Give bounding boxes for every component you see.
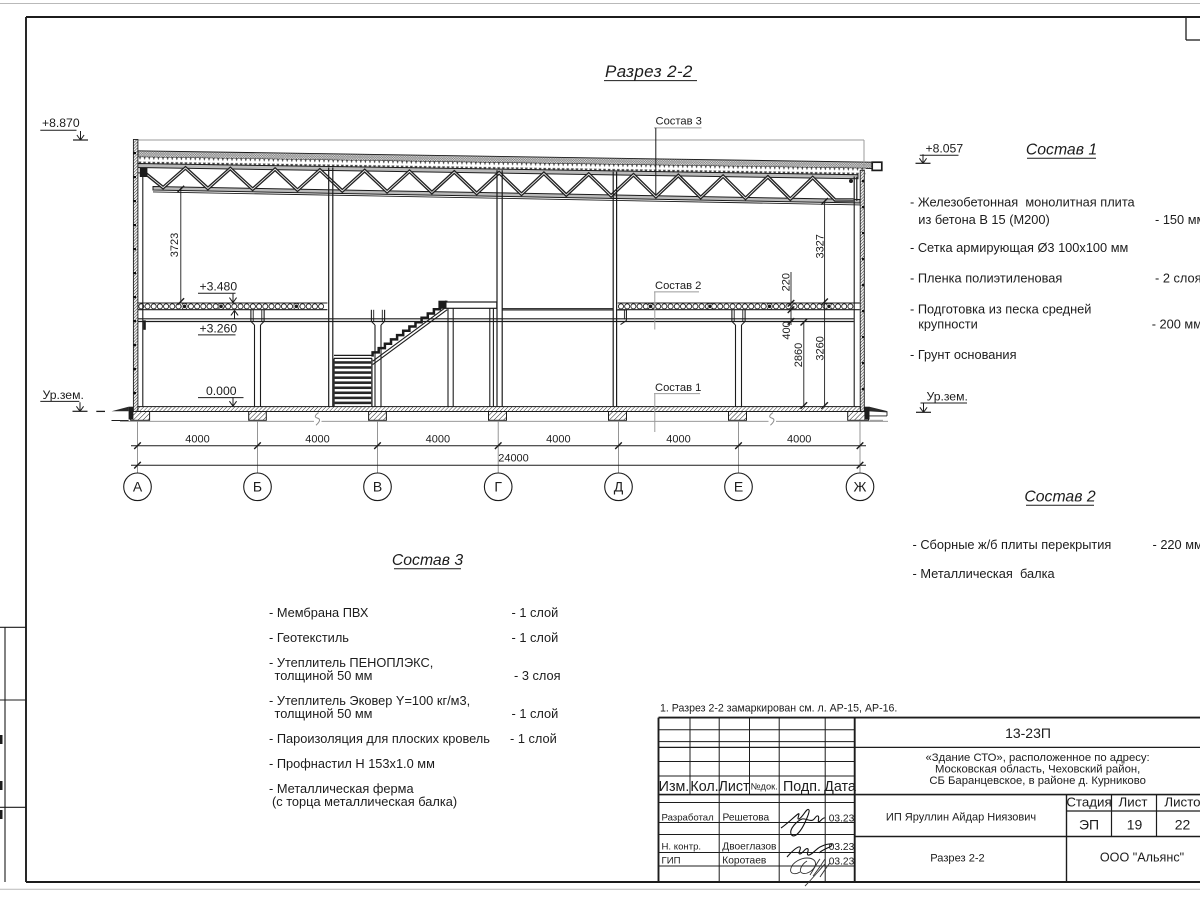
svg-text:1. Разрез 2-2 замаркирован см.: 1. Разрез 2-2 замаркирован см. л. АР-15,… xyxy=(660,703,897,715)
svg-text:Разрез 2-2: Разрез 2-2 xyxy=(605,62,693,81)
svg-text:13-23П: 13-23П xyxy=(1005,725,1051,741)
svg-text:Состав 1: Состав 1 xyxy=(655,382,701,394)
svg-text:- Железобетонная монолитная п: - Железобетонная монолитная плита xyxy=(910,195,1136,210)
svg-text:из бетона В 15 (М200): из бетона В 15 (М200) xyxy=(918,212,1049,227)
svg-text:4000: 4000 xyxy=(426,434,450,446)
svg-text:ГИП: ГИП xyxy=(662,856,681,867)
svg-text:Н. контр.: Н. контр. xyxy=(662,841,702,852)
svg-text:+8.057: +8.057 xyxy=(926,142,964,156)
svg-text:толщиной 50 мм: толщиной 50 мм xyxy=(275,668,373,683)
svg-text:- 150 мм: - 150 мм xyxy=(1155,212,1200,227)
svg-text:- 1 слой: - 1 слой xyxy=(512,630,559,645)
svg-text:ИП Яруллин Айдар Ниязович: ИП Яруллин Айдар Ниязович xyxy=(886,812,1036,824)
svg-text:толщиной 50 мм: толщиной 50 мм xyxy=(275,706,373,721)
svg-text:Листов: Листов xyxy=(1164,795,1200,810)
svg-text:Г: Г xyxy=(494,479,502,495)
svg-text:- 3 слоя: - 3 слоя xyxy=(514,668,561,683)
svg-text:Состав 1: Состав 1 xyxy=(1026,142,1097,159)
svg-text:400: 400 xyxy=(781,321,793,339)
svg-text:Ж: Ж xyxy=(854,479,867,495)
svg-text:крупности: крупности xyxy=(918,316,978,331)
svg-text:Коротаев: Коротаев xyxy=(722,856,766,867)
svg-text:- 200 мм: - 200 мм xyxy=(1152,316,1200,331)
svg-text:- Металлическая балка: - Металлическая балка xyxy=(913,566,1056,581)
svg-text:+3.260: +3.260 xyxy=(200,322,238,336)
svg-text:Е: Е xyxy=(734,479,743,495)
svg-text:- Грунт основания: - Грунт основания xyxy=(910,347,1017,362)
svg-text:Разработал: Разработал xyxy=(662,813,714,824)
svg-text:- Пароизоляция для плоских кро: - Пароизоляция для плоских кровель xyxy=(269,731,490,746)
svg-text:+8.870: +8.870 xyxy=(42,116,80,130)
svg-text:Лист: Лист xyxy=(718,779,750,795)
svg-text:3327: 3327 xyxy=(814,234,826,258)
svg-text:ЭП: ЭП xyxy=(1079,817,1099,833)
svg-text:03.23: 03.23 xyxy=(829,842,855,853)
svg-text:Состав 2: Состав 2 xyxy=(1024,489,1095,506)
svg-text:4000: 4000 xyxy=(666,434,690,446)
svg-text:4000: 4000 xyxy=(305,434,329,446)
svg-text:03.23: 03.23 xyxy=(829,856,855,867)
svg-text:Дата: Дата xyxy=(824,779,856,795)
svg-text:Кол.: Кол. xyxy=(690,779,718,795)
svg-text:+3.480: +3.480 xyxy=(200,280,238,294)
svg-text:А: А xyxy=(133,479,143,495)
svg-text:- Профнастил Н 153х1.0 мм: - Профнастил Н 153х1.0 мм xyxy=(269,756,435,771)
svg-text:- 220 мм: - 220 мм xyxy=(1153,537,1200,552)
svg-text:- Сетка армирующая Ø3 100х100: - Сетка армирующая Ø3 100х100 мм xyxy=(910,240,1128,255)
svg-text:Ур.зем.: Ур.зем. xyxy=(927,390,968,404)
svg-text:В: В xyxy=(373,479,382,495)
svg-text:- Геотекстиль: - Геотекстиль xyxy=(269,630,349,645)
svg-text:№док.: №док. xyxy=(751,782,778,792)
svg-text:4000: 4000 xyxy=(185,434,209,446)
svg-text:- 1 слой: - 1 слой xyxy=(512,605,559,620)
svg-text:- Сборные ж/б плиты перекрытия: - Сборные ж/б плиты перекрытия xyxy=(913,537,1112,552)
svg-text:Стадия: Стадия xyxy=(1066,795,1111,810)
svg-text:ООО "Альянс": ООО "Альянс" xyxy=(1100,851,1184,865)
svg-text:03.23: 03.23 xyxy=(829,813,855,824)
svg-text:- 1 слой: - 1 слой xyxy=(512,706,559,721)
svg-text:Разрез 2-2: Разрез 2-2 xyxy=(930,853,984,865)
svg-text:Состав 3: Состав 3 xyxy=(392,552,463,569)
svg-text:- Пленка полиэтиленовая: - Пленка полиэтиленовая xyxy=(910,270,1062,285)
svg-text:3723: 3723 xyxy=(169,233,181,257)
svg-text:Б: Б xyxy=(253,479,262,495)
svg-text:(с торца металлическая балка): (с торца металлическая балка) xyxy=(272,794,457,809)
svg-text:2860: 2860 xyxy=(793,343,805,367)
svg-text:Состав 2: Состав 2 xyxy=(655,280,701,292)
svg-text:19: 19 xyxy=(1127,817,1143,833)
svg-text:Ур.зем.: Ур.зем. xyxy=(43,388,84,402)
svg-text:- 1 слой: - 1 слой xyxy=(510,731,557,746)
svg-text:Изм.: Изм. xyxy=(659,779,690,795)
svg-text:СБ Баранцевское, в районе д. К: СБ Баранцевское, в районе д. Курниково xyxy=(929,775,1146,787)
svg-text:Состав 3: Состав 3 xyxy=(656,116,702,128)
svg-text:3260: 3260 xyxy=(815,336,827,360)
svg-text:Подп.: Подп. xyxy=(783,779,821,795)
svg-text:Лист: Лист xyxy=(1119,795,1148,810)
svg-text:22: 22 xyxy=(1175,817,1191,833)
svg-text:- Подготовка из песка средней: - Подготовка из песка средней xyxy=(910,301,1091,316)
svg-text:«Здание СТО», расположенное по: «Здание СТО», расположенное по адресу: xyxy=(926,752,1150,764)
svg-text:Московская область, Чеховский: Московская область, Чеховский район, xyxy=(935,764,1140,776)
svg-text:- 2 слоя: - 2 слоя xyxy=(1155,270,1200,285)
svg-text:24000: 24000 xyxy=(498,453,529,465)
svg-text:220: 220 xyxy=(780,273,792,291)
svg-text:Решетова: Решетова xyxy=(723,813,770,824)
svg-text:Д: Д xyxy=(614,479,624,495)
svg-text:4000: 4000 xyxy=(787,434,811,446)
svg-text:- Мембрана ПВХ: - Мембрана ПВХ xyxy=(269,605,369,620)
svg-text:4000: 4000 xyxy=(546,434,570,446)
svg-text:Двоеглазов: Двоеглазов xyxy=(722,841,776,852)
svg-text:0.000: 0.000 xyxy=(206,384,237,398)
